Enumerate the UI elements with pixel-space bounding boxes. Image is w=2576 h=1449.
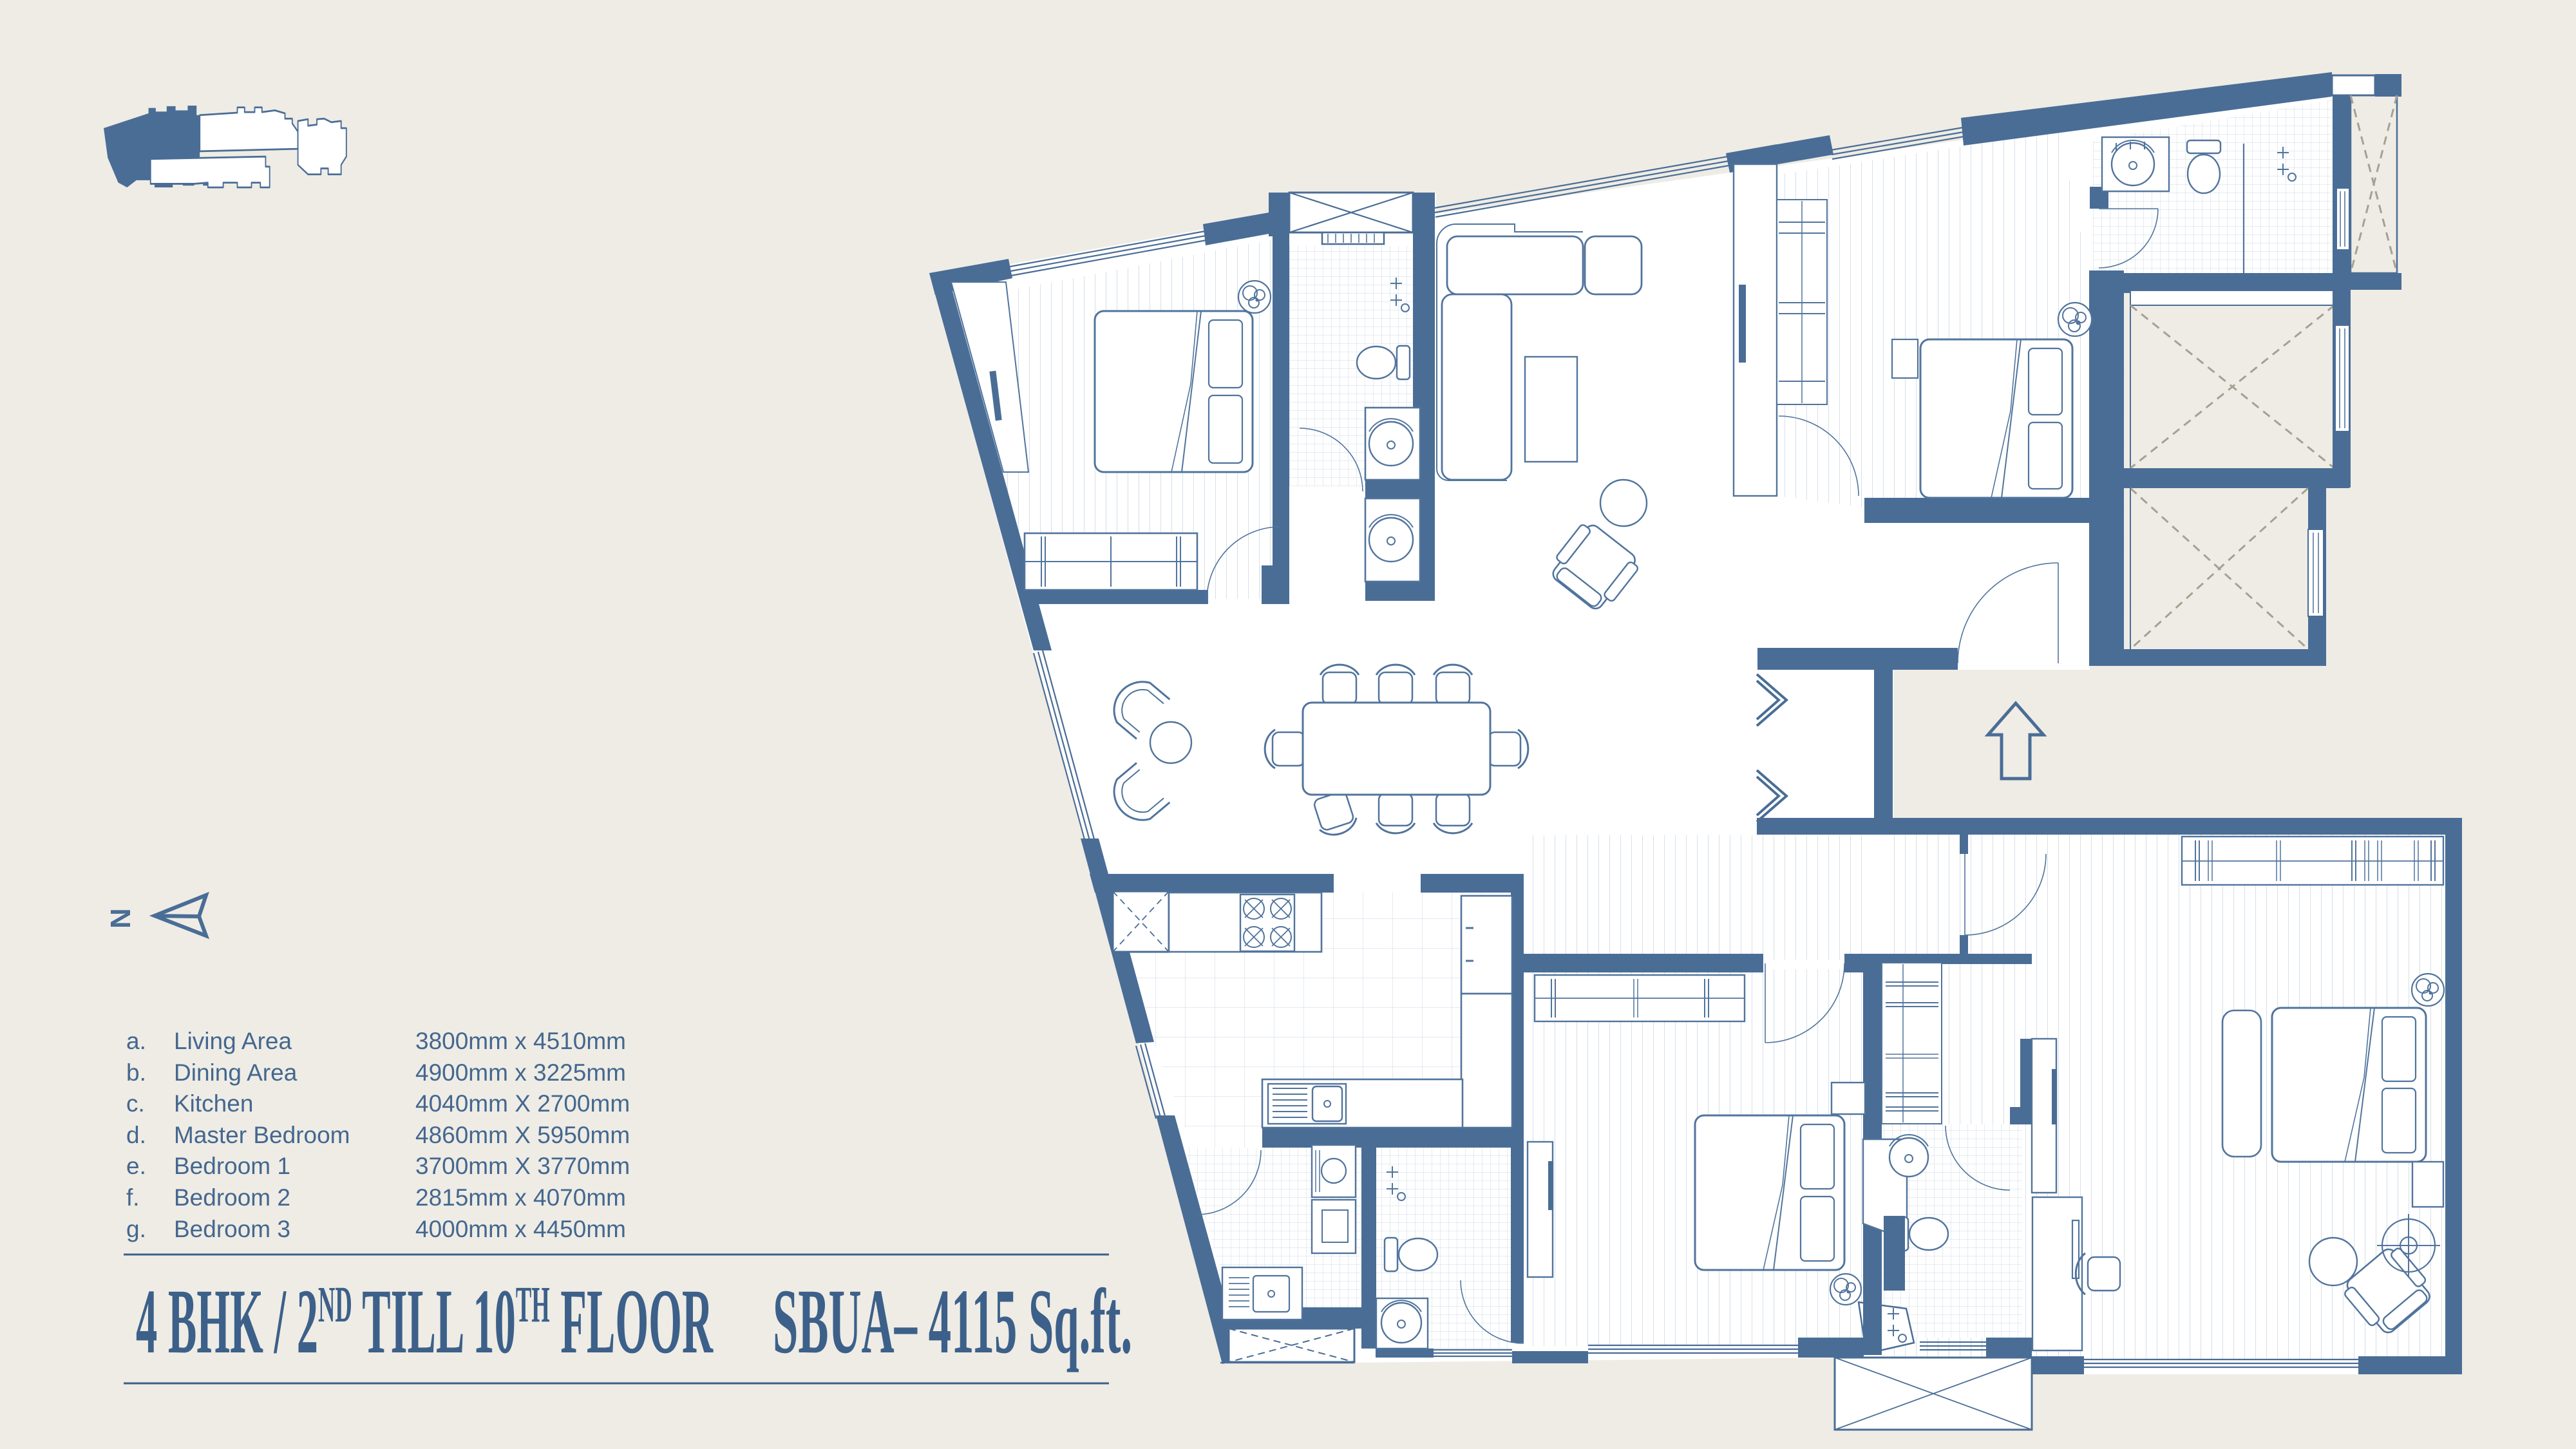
svg-text:Kitchen: Kitchen (174, 1090, 253, 1117)
svg-text:4000mm x 4450mm: 4000mm x 4450mm (415, 1216, 626, 1242)
svg-text:Master Bedroom: Master Bedroom (174, 1122, 350, 1148)
svg-text:b.: b. (126, 1059, 146, 1086)
svg-text:f.: f. (126, 1184, 140, 1211)
svg-text:2815mm x 4070mm: 2815mm x 4070mm (415, 1184, 626, 1211)
svg-text:a.: a. (126, 1028, 146, 1054)
svg-text:Dining Area: Dining Area (174, 1059, 298, 1086)
svg-text:c.: c. (126, 1090, 145, 1117)
svg-text:N: N (105, 908, 137, 929)
svg-text:Bedroom 1: Bedroom 1 (174, 1153, 290, 1179)
svg-text:SBUA– 4115 Sq.ft.: SBUA– 4115 Sq.ft. (773, 1270, 1132, 1373)
svg-text:Living Area: Living Area (174, 1028, 292, 1054)
svg-text:Bedroom 2: Bedroom 2 (174, 1184, 290, 1211)
svg-text:d.: d. (126, 1122, 146, 1148)
svg-text:e.: e. (126, 1153, 146, 1179)
svg-text:3700mm X 3770mm: 3700mm X 3770mm (415, 1153, 630, 1179)
svg-text:4900mm x 3225mm: 4900mm x 3225mm (415, 1059, 626, 1086)
svg-text:4 BHK / 2ND TILL 10TH FLOOR: 4 BHK / 2ND TILL 10TH FLOOR (136, 1271, 714, 1373)
svg-text:3800mm x 4510mm: 3800mm x 4510mm (415, 1028, 626, 1054)
svg-text:g.: g. (126, 1216, 146, 1242)
svg-text:4040mm X 2700mm: 4040mm X 2700mm (415, 1090, 630, 1117)
svg-text:Bedroom 3: Bedroom 3 (174, 1216, 290, 1242)
svg-text:4860mm X 5950mm: 4860mm X 5950mm (415, 1122, 630, 1148)
